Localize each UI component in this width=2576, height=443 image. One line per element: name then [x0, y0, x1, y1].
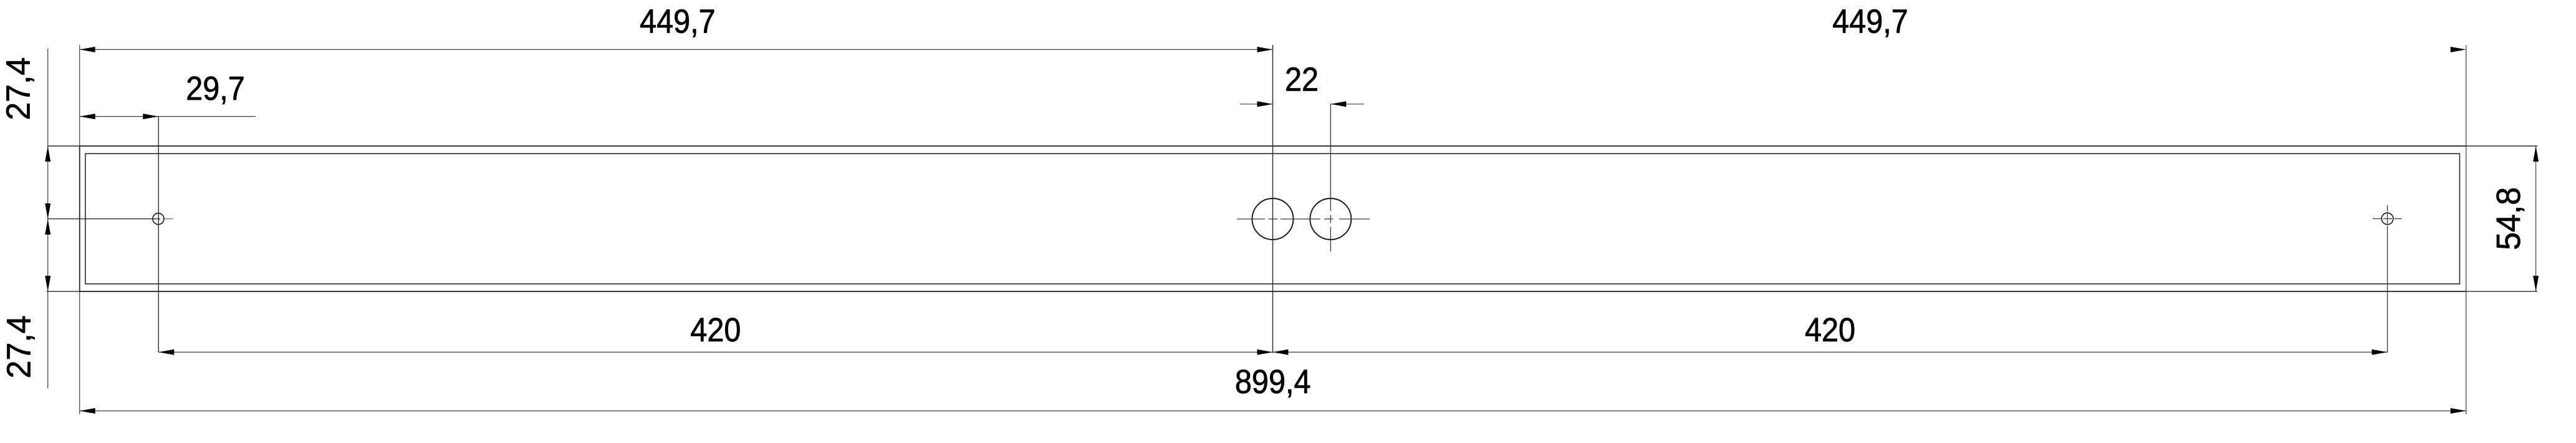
- svg-text:27,4: 27,4: [0, 57, 37, 120]
- svg-text:420: 420: [1805, 311, 1855, 349]
- svg-text:420: 420: [690, 311, 741, 349]
- svg-text:899,4: 899,4: [1235, 363, 1311, 401]
- svg-text:54,8: 54,8: [2490, 187, 2527, 250]
- svg-text:449,7: 449,7: [640, 2, 716, 40]
- svg-text:449,7: 449,7: [1832, 2, 1908, 40]
- svg-text:22: 22: [1285, 60, 1319, 98]
- svg-text:27,4: 27,4: [1, 316, 38, 379]
- svg-text:29,7: 29,7: [186, 69, 245, 107]
